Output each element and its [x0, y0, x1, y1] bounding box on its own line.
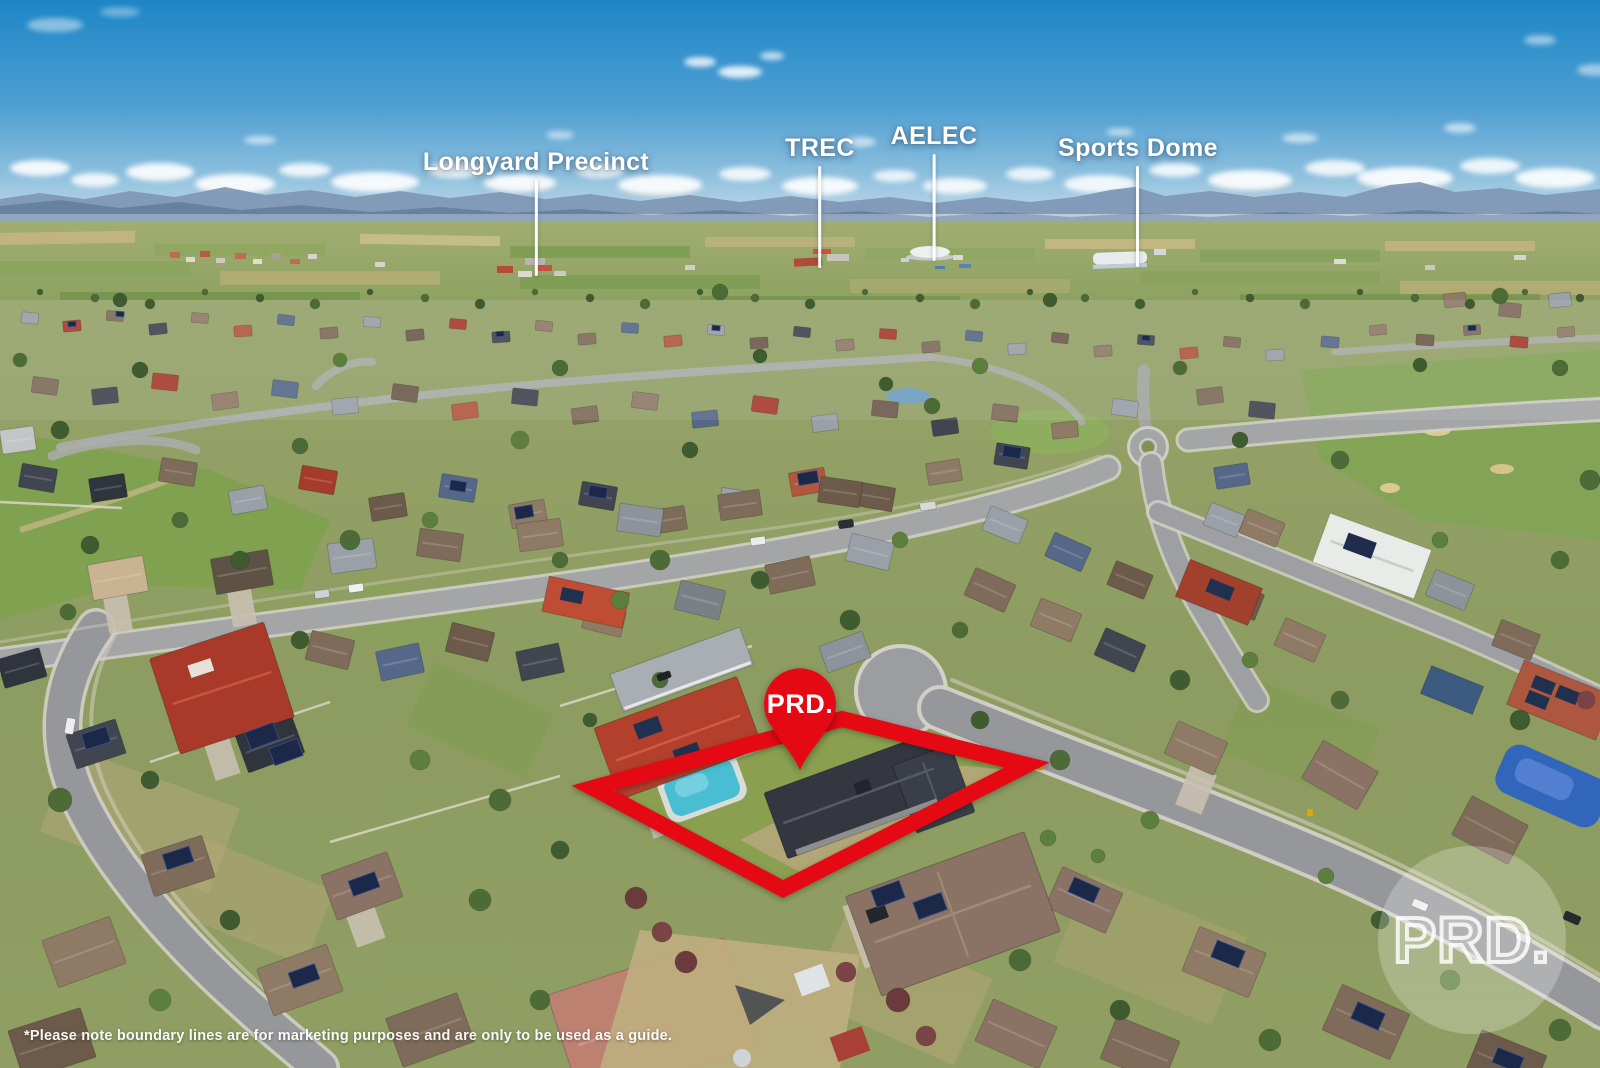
landmark-label-text: AELEC	[891, 122, 978, 151]
landmark-label-longyard-precinct: Longyard Precinct	[423, 148, 649, 276]
landmark-label-sports-dome: Sports Dome	[1058, 134, 1218, 267]
landmark-label-text: Longyard Precinct	[423, 148, 649, 177]
landmark-pointer-line	[819, 166, 822, 268]
landmark-pointer-line	[1136, 166, 1139, 267]
landmark-pointer-line	[534, 180, 537, 276]
landmark-label-text: TREC	[785, 134, 855, 163]
landmark-label-aelec: AELEC	[891, 122, 978, 261]
listing-aerial-photo: PRD. Longyard Precinct TREC AELEC Sports…	[0, 0, 1600, 1068]
prd-watermark-text: PRD.	[1394, 903, 1551, 977]
landmark-label-trec: TREC	[785, 134, 855, 268]
landmark-pointer-line	[932, 154, 935, 261]
disclaimer-text: *Please note boundary lines are for mark…	[24, 1028, 672, 1044]
prd-watermark: PRD.	[1378, 846, 1566, 1034]
distance-haze	[0, 300, 1600, 420]
water-tank	[733, 1049, 751, 1067]
landmark-label-text: Sports Dome	[1058, 134, 1218, 163]
